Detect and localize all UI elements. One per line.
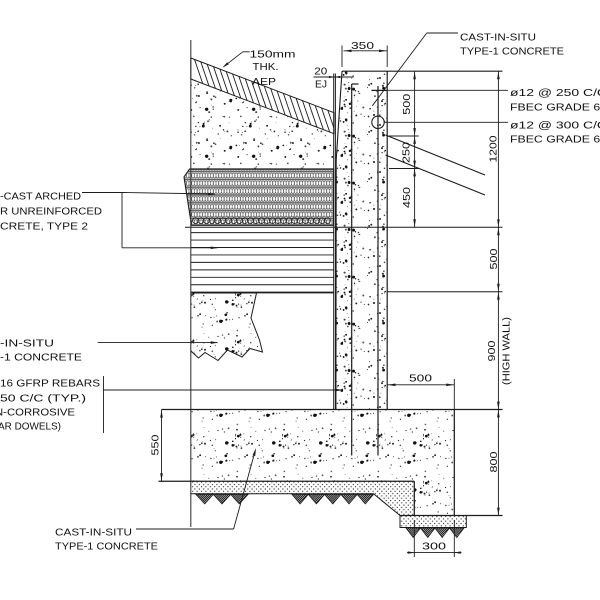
svg-text:THK.: THK. bbox=[253, 61, 279, 73]
svg-text:800: 800 bbox=[488, 451, 500, 472]
svg-text:500: 500 bbox=[401, 94, 413, 115]
svg-text:N-CORROSIVE: N-CORROSIVE bbox=[0, 407, 75, 419]
svg-text:16 GFRP REBARS: 16 GFRP REBARS bbox=[0, 378, 100, 390]
svg-text:-1 CONCRETE: -1 CONCRETE bbox=[0, 352, 82, 364]
svg-text:450: 450 bbox=[401, 187, 413, 208]
svg-text:ø12 @ 250 C/C: ø12 @ 250 C/C bbox=[510, 87, 600, 99]
svg-text:AEP: AEP bbox=[252, 76, 276, 88]
svg-text:TYPE-1 CONCRETE: TYPE-1 CONCRETE bbox=[55, 541, 158, 553]
svg-text:EJ: EJ bbox=[315, 79, 327, 91]
svg-text:CAST-IN-SITU: CAST-IN-SITU bbox=[460, 32, 536, 44]
svg-text:CRETE, TYPE 2: CRETE, TYPE 2 bbox=[0, 221, 88, 233]
svg-text:250: 250 bbox=[401, 142, 413, 163]
svg-text:FBEC GRADE 60: FBEC GRADE 60 bbox=[510, 134, 600, 146]
svg-text:FBEC GRADE 60: FBEC GRADE 60 bbox=[510, 102, 600, 114]
svg-text:-CAST ARCHED: -CAST ARCHED bbox=[0, 191, 81, 203]
svg-text:550: 550 bbox=[150, 434, 162, 455]
svg-text:(HIGH WALL): (HIGH WALL) bbox=[501, 317, 513, 385]
svg-text:ø12 @ 300 C/C: ø12 @ 300 C/C bbox=[510, 120, 600, 132]
svg-text:CAST-IN-SITU: CAST-IN-SITU bbox=[55, 526, 132, 538]
svg-text:R UNREINFORCED: R UNREINFORCED bbox=[0, 206, 102, 218]
svg-text:TYPE-1 CONCRETE: TYPE-1 CONCRETE bbox=[460, 46, 564, 58]
svg-text:350: 350 bbox=[351, 40, 374, 52]
svg-text:900: 900 bbox=[486, 340, 498, 361]
svg-text:20: 20 bbox=[314, 66, 327, 78]
svg-text:AR DOWELS): AR DOWELS) bbox=[0, 421, 61, 433]
svg-text:300: 300 bbox=[422, 541, 446, 553]
svg-text:50 C/C (TYP.): 50 C/C (TYP.) bbox=[0, 393, 86, 405]
svg-text:500: 500 bbox=[409, 372, 432, 384]
svg-text:-IN-SITU: -IN-SITU bbox=[0, 338, 54, 350]
svg-text:150mm: 150mm bbox=[250, 49, 296, 61]
svg-text:1200: 1200 bbox=[488, 135, 500, 162]
svg-text:500: 500 bbox=[488, 248, 500, 269]
